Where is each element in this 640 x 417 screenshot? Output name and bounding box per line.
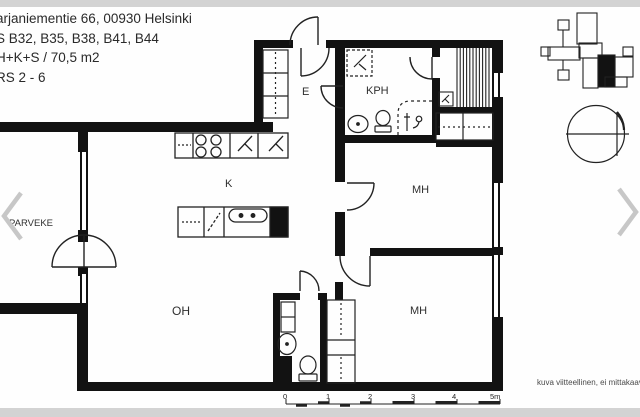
carousel-prev-button[interactable] xyxy=(0,190,26,242)
scale-label: 0 xyxy=(283,392,287,401)
freezer-icon xyxy=(269,136,283,151)
stove-icon xyxy=(196,135,221,157)
door-arc xyxy=(410,57,432,79)
bottom-border-band xyxy=(0,408,640,417)
wall-segment xyxy=(254,40,263,132)
wall-post xyxy=(78,130,88,152)
room-label-e: E xyxy=(302,86,309,98)
wall-segment xyxy=(335,212,345,256)
room-label-oh: OH xyxy=(172,304,190,318)
toilet-icon xyxy=(375,111,391,133)
kitchen-counter xyxy=(175,133,288,158)
wall-segment xyxy=(0,303,88,314)
wardrobe xyxy=(327,300,355,383)
wardrobe xyxy=(281,302,295,332)
wardrobe xyxy=(436,113,493,140)
wall-segment xyxy=(436,140,503,147)
chevron-left-icon xyxy=(0,190,26,242)
top-border-band xyxy=(0,0,640,7)
shower-icon xyxy=(398,101,433,135)
room-label-kph: KPH xyxy=(366,85,389,97)
bathroom-sink-icon xyxy=(348,116,368,133)
chevron-right-icon xyxy=(614,186,640,238)
apartment-ids-line: S B32, B35, B38, B41, B44 xyxy=(0,29,192,49)
sauna-benches xyxy=(457,48,489,107)
sauna-heater-icon xyxy=(439,92,453,106)
listing-header: arjaniementie 66, 00930 Helsinki S B32, … xyxy=(0,9,192,87)
scale-label: 1 xyxy=(326,392,330,401)
site-plan-map xyxy=(541,13,633,88)
wall-segment xyxy=(320,293,327,383)
wardrobe xyxy=(263,50,288,118)
window xyxy=(492,255,500,317)
wall-segment xyxy=(335,48,345,182)
wall-segment xyxy=(0,122,273,132)
dishwasher-icon xyxy=(208,213,220,231)
room-label-mh-bottom: MH xyxy=(410,305,427,317)
wall-post xyxy=(78,230,88,242)
window xyxy=(492,73,500,97)
window xyxy=(80,274,88,303)
room-label-mh-top: MH xyxy=(412,184,429,196)
wall-segment xyxy=(335,135,436,143)
room-label-k: K xyxy=(225,178,232,190)
wall-segment xyxy=(77,303,88,391)
window xyxy=(80,152,88,230)
compass-icon xyxy=(566,106,629,163)
duct-block xyxy=(273,356,292,383)
scale-label: 2 xyxy=(368,392,372,401)
floors-line: RS 2 - 6 xyxy=(0,68,192,88)
door-arc xyxy=(290,17,329,76)
wall-segment xyxy=(254,40,293,48)
scale-bar xyxy=(286,399,500,406)
floorplan-image: arjaniementie 66, 00930 Helsinki S B32, … xyxy=(0,0,640,417)
window xyxy=(492,183,500,247)
wall-segment xyxy=(432,48,440,57)
wall-segment xyxy=(370,248,497,256)
fridge-icon xyxy=(238,136,252,151)
door-arc xyxy=(340,256,370,286)
wall-segment xyxy=(492,48,503,73)
scale-label: 3 xyxy=(411,392,415,401)
carousel-next-button[interactable] xyxy=(614,186,640,238)
scale-label: 5m xyxy=(490,392,500,401)
wall-segment xyxy=(492,317,503,383)
layout-area-line: H+K+S / 70,5 m2 xyxy=(0,48,192,68)
scale-label: 4 xyxy=(452,392,456,401)
wall-segment xyxy=(77,382,503,391)
toilet-icon xyxy=(299,356,317,381)
kitchen-sink-icon xyxy=(229,209,267,222)
wall-segment xyxy=(326,40,503,48)
kitchen-island xyxy=(178,207,288,237)
washer-reservation-icon xyxy=(347,50,372,76)
door-arc xyxy=(300,271,319,291)
address-line: arjaniementie 66, 00930 Helsinki xyxy=(0,9,192,29)
door-arc xyxy=(347,183,374,210)
bathroom-sink-icon xyxy=(278,334,296,355)
wall-segment xyxy=(335,282,343,300)
disclaimer-text: kuva viitteellinen, ei mittakaava xyxy=(537,378,640,387)
wall-segment xyxy=(436,107,503,113)
